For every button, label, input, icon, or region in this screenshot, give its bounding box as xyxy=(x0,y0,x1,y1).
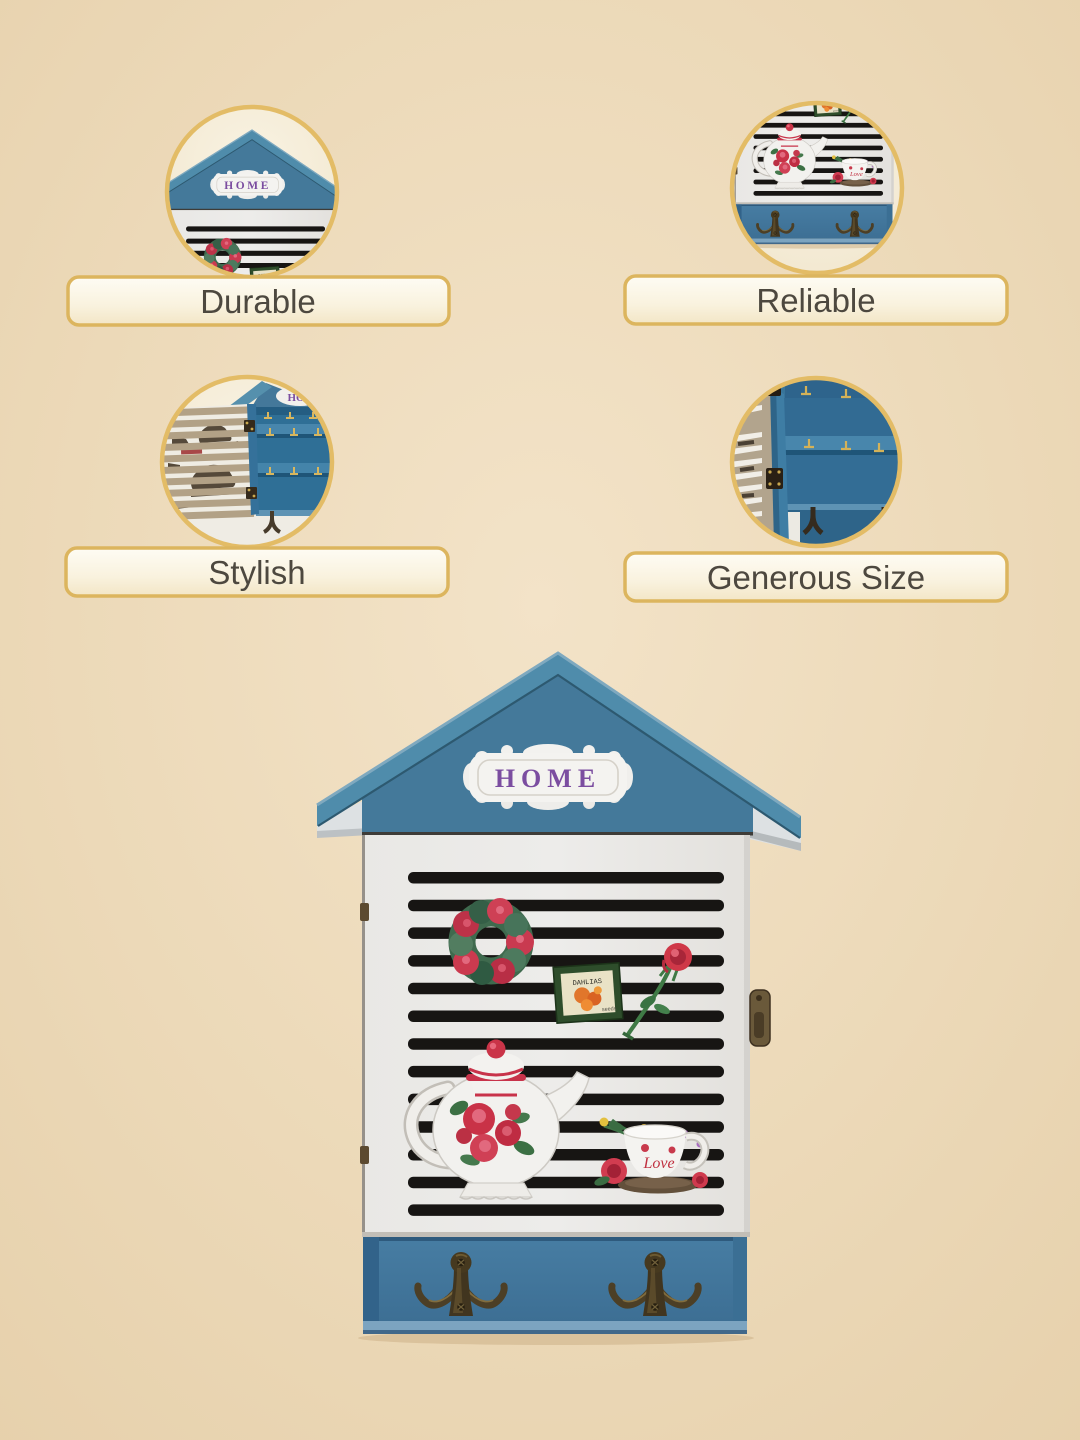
svg-text:Durable: Durable xyxy=(200,283,316,320)
svg-text:Stylish: Stylish xyxy=(208,554,305,591)
svg-text:Reliable: Reliable xyxy=(756,282,875,319)
svg-text:Generous Size: Generous Size xyxy=(707,559,925,596)
